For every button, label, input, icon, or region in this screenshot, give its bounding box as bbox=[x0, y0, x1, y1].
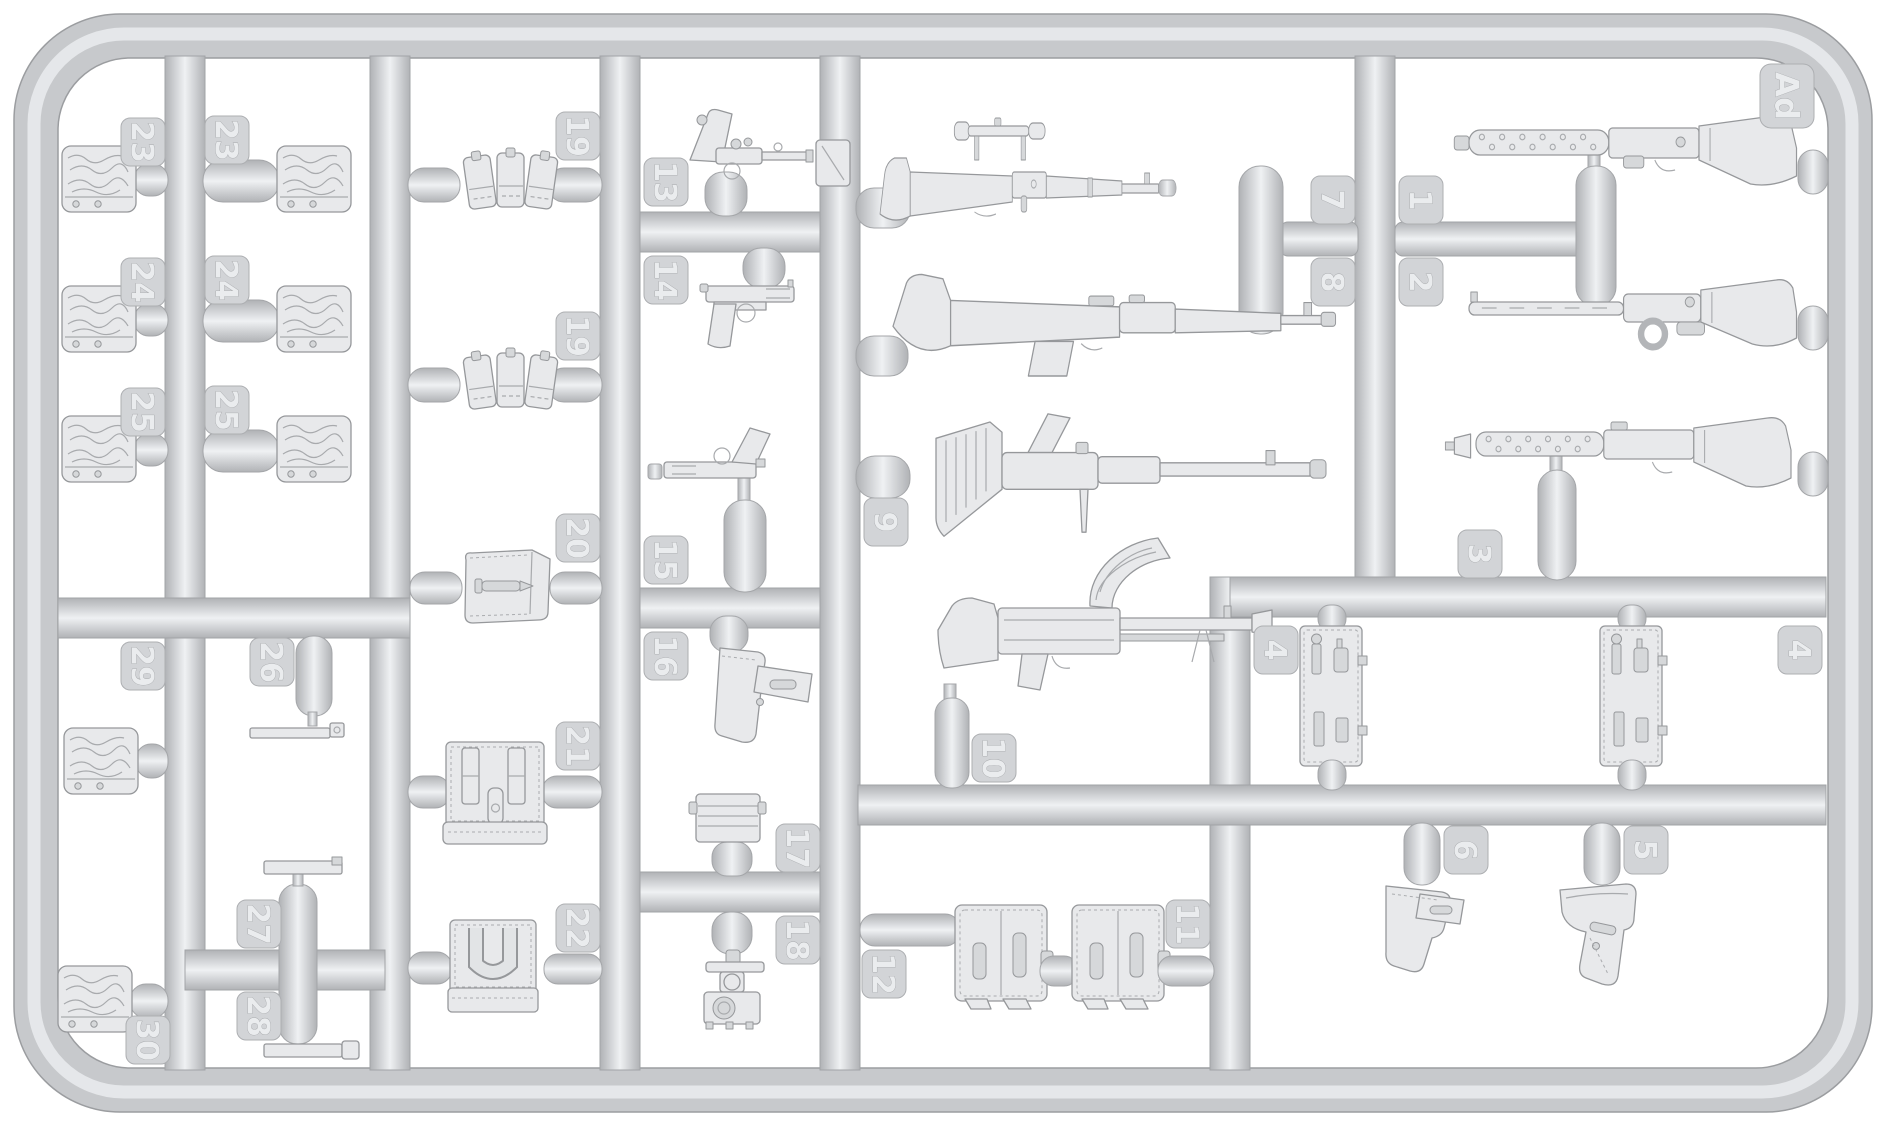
svg-text:12: 12 bbox=[865, 953, 900, 995]
svg-text:19: 19 bbox=[559, 315, 594, 357]
part-25-right bbox=[277, 416, 351, 482]
svg-text:20: 20 bbox=[559, 517, 594, 559]
tag-30: 30 bbox=[126, 1016, 170, 1064]
part-17-ammo-box bbox=[689, 794, 766, 842]
svg-text:18: 18 bbox=[779, 919, 814, 961]
part-20-pouch-with-tool bbox=[465, 550, 550, 623]
tag-18: 18 bbox=[776, 916, 820, 964]
sprue-code-tag: Ad bbox=[1760, 64, 1814, 128]
tag-24-right: 24 bbox=[205, 256, 249, 304]
part-22-gas-cape-pouch bbox=[448, 920, 538, 1012]
svg-text:26: 26 bbox=[253, 641, 288, 683]
svg-text:22: 22 bbox=[559, 907, 594, 949]
runner-stub-12 bbox=[1395, 222, 1585, 256]
tag-5: 5 bbox=[1624, 826, 1668, 874]
runner-v1 bbox=[165, 56, 205, 1070]
svg-text:19: 19 bbox=[559, 115, 594, 157]
tag-20: 20 bbox=[556, 514, 600, 562]
tag-10: 10 bbox=[972, 734, 1016, 782]
svg-text:23: 23 bbox=[208, 119, 243, 161]
tag-17: 17 bbox=[776, 824, 820, 872]
svg-text:8: 8 bbox=[1314, 272, 1349, 293]
part-12-satchel bbox=[955, 905, 1053, 1009]
tag-19-top: 19 bbox=[556, 112, 600, 160]
svg-text:24: 24 bbox=[124, 261, 159, 303]
tag-29: 29 bbox=[121, 642, 165, 690]
svg-text:14: 14 bbox=[647, 259, 682, 301]
svg-text:17: 17 bbox=[779, 827, 814, 869]
svg-text:23: 23 bbox=[124, 121, 159, 163]
tag-23-left: 23 bbox=[121, 118, 165, 166]
svg-text:3: 3 bbox=[1461, 544, 1496, 565]
svg-text:16: 16 bbox=[647, 635, 682, 677]
tag-2: 2 bbox=[1399, 258, 1443, 306]
tag-12: 12 bbox=[862, 950, 906, 998]
svg-text:24: 24 bbox=[208, 259, 243, 301]
svg-text:2: 2 bbox=[1402, 272, 1437, 293]
part-24-right bbox=[277, 286, 351, 352]
runner-v3 bbox=[600, 56, 640, 1070]
tag-21: 21 bbox=[556, 722, 600, 770]
part-4-right bbox=[1600, 626, 1667, 766]
svg-text:25: 25 bbox=[124, 391, 159, 433]
tag-3: 3 bbox=[1458, 530, 1502, 578]
part-19-bottom bbox=[462, 348, 559, 410]
svg-text:9: 9 bbox=[867, 512, 902, 533]
tag-15: 15 bbox=[644, 536, 688, 584]
tag-22: 22 bbox=[556, 904, 600, 952]
svg-text:30: 30 bbox=[129, 1019, 164, 1061]
svg-text:7: 7 bbox=[1314, 190, 1349, 211]
part-4-left bbox=[1300, 626, 1367, 766]
tag-1: 1 bbox=[1399, 176, 1443, 224]
tag-23-right: 23 bbox=[205, 116, 249, 164]
svg-text:27: 27 bbox=[240, 903, 275, 945]
part-21-bread-bag bbox=[443, 742, 547, 844]
tag-26: 26 bbox=[250, 638, 294, 686]
part-30 bbox=[58, 966, 132, 1032]
svg-text:4: 4 bbox=[1781, 640, 1816, 661]
tag-6: 6 bbox=[1444, 826, 1488, 874]
svg-text:10: 10 bbox=[975, 737, 1010, 779]
svg-text:5: 5 bbox=[1627, 840, 1662, 861]
tag-4-right: 4 bbox=[1778, 626, 1822, 674]
tag-7: 7 bbox=[1311, 176, 1355, 224]
svg-text:Ad: Ad bbox=[1767, 72, 1805, 120]
part-29 bbox=[64, 728, 138, 794]
svg-text:28: 28 bbox=[240, 995, 275, 1037]
svg-text:11: 11 bbox=[1169, 903, 1204, 945]
runner-v6 bbox=[1355, 56, 1395, 617]
svg-text:13: 13 bbox=[647, 161, 682, 203]
tag-19-bottom: 19 bbox=[556, 312, 600, 360]
runner-v2 bbox=[370, 56, 410, 1070]
tag-11: 11 bbox=[1166, 900, 1210, 948]
svg-text:21: 21 bbox=[559, 725, 594, 767]
svg-text:29: 29 bbox=[124, 645, 159, 687]
sprue-photo: 23 24 25 29 30 23 24 25 26 27 28 19 19 2… bbox=[0, 0, 1886, 1126]
part-23-right bbox=[277, 146, 351, 212]
tag-24-left: 24 bbox=[121, 258, 165, 306]
runner-h3 bbox=[640, 212, 820, 252]
tag-25-left: 25 bbox=[121, 388, 165, 436]
runner-v4 bbox=[820, 56, 860, 1070]
runner-stub-78 bbox=[1280, 222, 1358, 256]
svg-text:15: 15 bbox=[647, 539, 682, 581]
tag-8: 8 bbox=[1311, 258, 1355, 306]
tag-14: 14 bbox=[644, 256, 688, 304]
svg-text:6: 6 bbox=[1447, 840, 1482, 861]
tag-4-left: 4 bbox=[1254, 626, 1298, 674]
tag-16: 16 bbox=[644, 632, 688, 680]
runner-h6 bbox=[858, 785, 1826, 825]
svg-text:1: 1 bbox=[1402, 190, 1437, 211]
part-28-strap bbox=[264, 1041, 359, 1059]
tag-28: 28 bbox=[237, 992, 281, 1040]
tag-25-right: 25 bbox=[205, 386, 249, 434]
part-19-top bbox=[462, 148, 559, 210]
runner-h1 bbox=[58, 598, 410, 638]
svg-text:25: 25 bbox=[208, 389, 243, 431]
tag-27: 27 bbox=[237, 900, 281, 948]
runner-h5 bbox=[640, 872, 820, 912]
svg-text:4: 4 bbox=[1257, 640, 1292, 661]
part-11-satchel bbox=[1072, 905, 1170, 1009]
tag-13: 13 bbox=[644, 158, 688, 206]
tag-9: 9 bbox=[864, 498, 908, 546]
